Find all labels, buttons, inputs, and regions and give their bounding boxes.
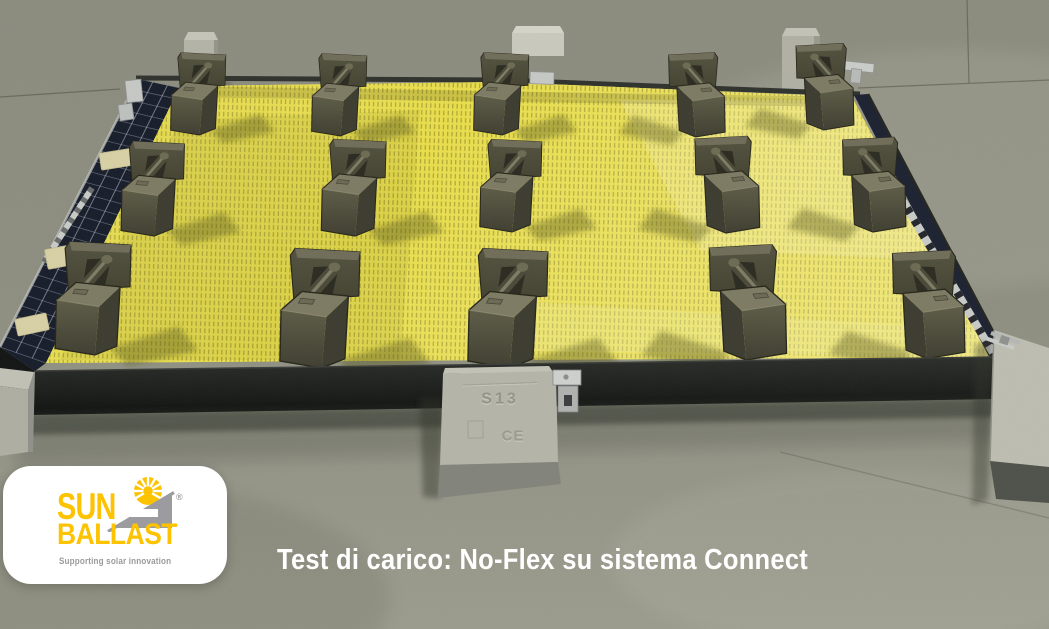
load-test-photo: S13 S13 CE CE SUN: [0, 0, 1049, 629]
registered-mark: ®: [176, 492, 183, 502]
logo-tagline: Supporting solar innovation: [59, 556, 171, 567]
photo-caption: Test di carico: No-Flex su sistema Conne…: [277, 544, 808, 577]
brand-card: SUN ® BALLAST Supporting solar innovatio…: [3, 466, 227, 584]
logo-text-ballast: BALLAST: [57, 520, 177, 550]
